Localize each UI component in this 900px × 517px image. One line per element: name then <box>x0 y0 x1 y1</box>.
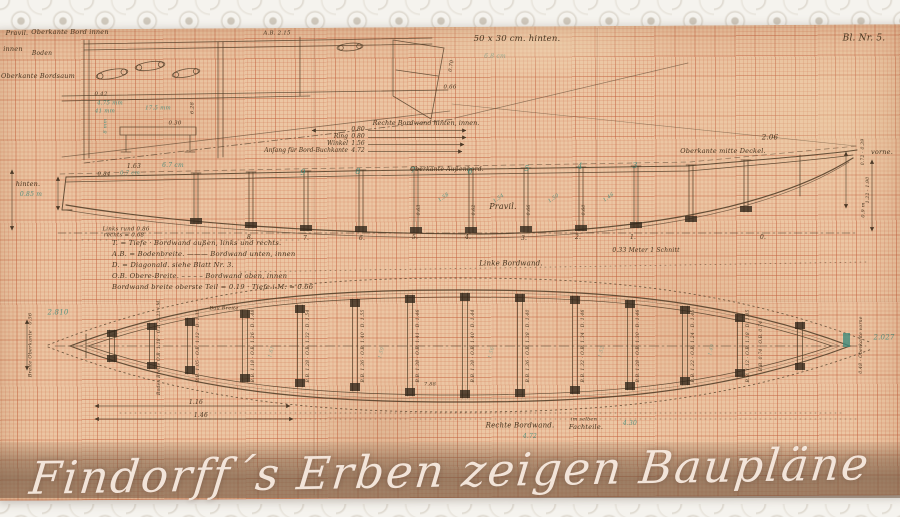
hand-label: im selben <box>571 418 597 423</box>
hand-label: 1.16 <box>189 400 203 406</box>
hand-label: 17.5 mm <box>145 106 171 112</box>
legend-line: Bordwand breite oberste Teil = 0.19 · Ti… <box>112 282 313 293</box>
label-pravil-top: Pravil. <box>6 30 29 37</box>
label-vorne: vorne. <box>871 149 893 156</box>
label-oberkante-aussenbord: Oberkante Außenbord. <box>410 167 484 173</box>
hand-label: 4.72 <box>523 434 537 440</box>
sheet-number: Bl. Nr. 5. <box>843 35 886 44</box>
hand-label: innen <box>3 46 22 53</box>
hand-label: 0.85 m <box>20 192 42 198</box>
hand-label: 0.30 <box>168 121 181 127</box>
hand-label: Bau Breite <box>209 307 238 312</box>
hand-label: 0.84 <box>97 172 110 178</box>
hand-label: 0.66 <box>528 205 533 216</box>
hand-label: 2.027 <box>873 335 894 342</box>
legend-line: A.B. = Bodenbreite. ——— Bordwand unten, … <box>112 249 313 260</box>
hand-label: 4.75 mm <box>97 101 123 107</box>
hand-label: 6.28 <box>191 102 196 114</box>
plan-frame-label: B.B. 1.28 · O.B. 1.32 · D. 1.54 <box>307 309 312 382</box>
station-number-ink: 1. <box>630 235 636 241</box>
label-oberkante-bordsaum: Oberkante Bordsaum <box>1 73 75 80</box>
plan-frame-label: B.B. 1.28 · O.B. 1.30 · D. 1.46 <box>637 309 642 382</box>
measure-list-title: Rechte Bordwand hinten, innen. <box>373 120 480 127</box>
hand-label: 0.62 <box>473 205 478 216</box>
station-number-ink: 6. <box>359 236 365 242</box>
hand-label: 41 mm <box>95 109 115 115</box>
hand-label: 0.63 <box>418 205 423 216</box>
station-number-ink: 0. <box>760 235 766 241</box>
hand-label: 4.30 <box>623 421 637 427</box>
station-number-pencil: 4 <box>577 163 582 171</box>
plan-frame-label: Boden Breite O.B. 1.18 · O.B. 1.23 i.M. <box>158 299 163 395</box>
hand-label: 2.810 <box>47 310 68 317</box>
scanned-boat-blueprint: Pravil.Oberkante Bord inneninnenBodenObe… <box>0 0 900 517</box>
label-oberkante-bord-innen: Oberkante Bord innen <box>31 29 108 36</box>
station-number-ink: 2. <box>575 235 581 241</box>
scale-note: 0.33 Meter 1 Schnitt <box>612 248 679 254</box>
label-linke-bordwand: Linke Bordwand. <box>479 261 543 268</box>
label-rechte-bordwand: Rechte Bordwand. <box>486 423 555 430</box>
station-number-pencil: 8 <box>355 168 360 176</box>
hand-label: 0.48 · Oberkante vorne <box>860 316 865 373</box>
station-number-ink: 4. <box>465 235 471 241</box>
hand-label: 0.42 <box>94 92 107 98</box>
hand-label: 0.60 <box>583 205 588 216</box>
stern-detail-view <box>12 37 856 230</box>
hand-label: 1.46 <box>194 413 208 419</box>
hand-label: 2.06 <box>762 135 778 142</box>
station-number-pencil: 5 <box>524 165 529 173</box>
legend-line: O.B. Obere-Breite. – – – – Bordwand oben… <box>112 271 313 282</box>
plan-frame-label: B.B. 1.18 · O.B. 1.26 · D. 1.48 <box>252 309 257 382</box>
paper-size-note: 50 x 30 cm. hinten. <box>474 35 561 44</box>
plan-frame-label: B.B. 1.38 · O.B. 1.41 · D. 1.46 <box>417 309 422 382</box>
plan-frame-label: B.B. 1.32 · O.B. 1.34 · D. 1.46 <box>582 309 587 382</box>
hand-label: Boden <box>32 51 52 57</box>
station-number-ink: 3. <box>521 236 527 242</box>
legend-line: D. = Diagonald. siehe Blatt Nr. 3. <box>112 260 313 271</box>
label-fachteile: Fachteile. <box>569 424 603 431</box>
hand-label: 7.88 <box>424 383 436 388</box>
station-number-pencil: 9 <box>300 169 305 177</box>
hand-label: 6.7 cm <box>162 163 184 169</box>
measure-row-label: Anfang für Bord-Buchkante <box>264 148 348 154</box>
hand-label: 0.66 <box>443 85 456 91</box>
hand-label: 1.22 · 1.90 <box>867 177 872 204</box>
hand-label: A.B. 2.15 <box>263 31 290 37</box>
profile-view <box>58 146 872 240</box>
label-oberkante-mitte-deckel: Oberkante mitte Deckel. <box>680 148 766 155</box>
hand-label: 8 mm <box>104 118 109 133</box>
hand-label: 6.8 cm <box>484 54 506 60</box>
plan-frame-label: B.B. 1.36 · O.B. 1.38 · D. 1.40 <box>527 309 532 382</box>
label-hinten: hinten. <box>16 181 41 188</box>
hand-label: 0.7 cm <box>120 171 140 177</box>
plan-frame-label: B.B. 1.38 · O.B. 1.40 · D. 1.44 <box>472 309 477 382</box>
station-number-pencil: 7 <box>410 167 415 175</box>
measure-row-value: 4.72 <box>351 148 364 154</box>
plan-frame-label: B.B. 0.74 · O.B. 0.74 <box>760 321 765 371</box>
plan-frame-label: B.B. 1.12 · O.B. 1.18 · D. 1.45 <box>747 309 752 382</box>
legend-line: T. = Tiefe · Bordwand außen, links und r… <box>112 238 313 249</box>
legend-block: T. = Tiefe · Bordwand außen, links und r… <box>112 238 313 293</box>
label-pravil-profile: Pravil. <box>489 203 517 211</box>
hand-label: 0.9 m <box>862 202 867 217</box>
station-number-pencil: 6 <box>467 168 472 176</box>
plan-frame-label: B.B. 1.22 · O.B. 1.24 · D. 1.45 <box>692 309 697 382</box>
station-number-ink: 5. <box>412 235 418 241</box>
plan-frame-label: B.B. 1.05 · O.B. 1.12 · D. 1.35 <box>197 309 202 382</box>
plan-frame-label: B.B. 1.36 · O.B. 1.40 · D. 1.55 <box>362 309 367 382</box>
hand-label: 0.72 · 0.39 <box>862 139 867 166</box>
hand-label: Breite Oberkante · 0.56 <box>29 313 34 378</box>
hand-label: 1.63 <box>127 164 141 170</box>
station-number-pencil: 3 <box>632 162 637 170</box>
